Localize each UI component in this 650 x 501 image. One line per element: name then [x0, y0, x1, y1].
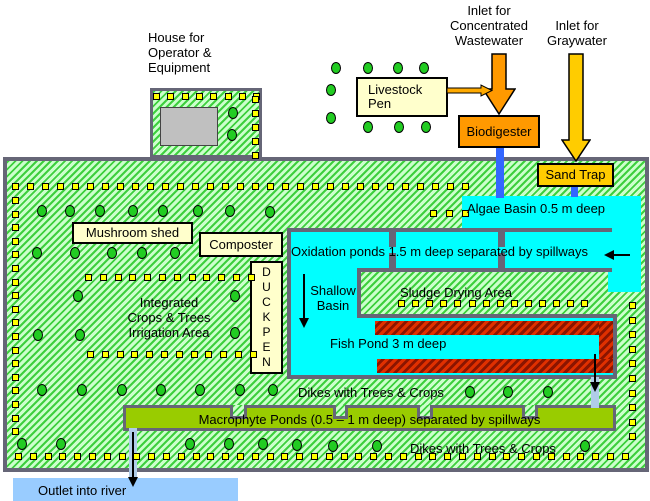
- oxidation-ponds-label: Oxidation ponds 1.5 m deep separated by …: [291, 244, 588, 259]
- tree-marker: [394, 121, 404, 133]
- integrated-area-label: IntegratedCrops & TreesIrrigation Area: [98, 295, 240, 340]
- inlet-graywater-label: Inlet forGraywater: [540, 18, 614, 48]
- dikes-upper-label: Dikes with Trees & Crops: [298, 385, 444, 400]
- inlet-concentrated-label: Inlet forConcentratedWastewater: [440, 3, 538, 48]
- duck-pen-box: D U C K P E N: [250, 261, 283, 374]
- duck-pen-letter: C: [262, 295, 271, 310]
- graywater-inflow-arrow-icon: [561, 53, 591, 163]
- oxidation-inflow-arrowhead-icon: [604, 250, 614, 260]
- dikes-lower-label: Dikes with Trees & Crops: [410, 441, 556, 456]
- algae-basin-label: Algae Basin 0.5 m deep: [467, 201, 605, 216]
- tree-marker: [326, 112, 336, 124]
- biodigester-pipe: [496, 147, 504, 198]
- outlet-flow-arrowhead-icon: [128, 477, 138, 487]
- fishpond-flow-arrowhead-icon: [590, 382, 600, 392]
- duck-pen-letter: K: [262, 310, 271, 325]
- fish-pond-liner-bottom: [377, 359, 613, 373]
- outlet-flow-arrow-icon: [132, 432, 134, 478]
- tree-marker: [326, 84, 336, 96]
- livestock-pen-label: Livestock: [368, 83, 422, 97]
- tree-marker: [363, 62, 373, 74]
- house-label: House forOperator &Equipment: [148, 30, 212, 75]
- shallow-basin-wall: [287, 268, 291, 316]
- fish-pond-liner-top: [375, 321, 613, 335]
- mushroom-shed-label: Mushroom shed: [86, 226, 179, 240]
- composter-label: Composter: [209, 238, 273, 252]
- biodigester-label: Biodigester: [466, 125, 531, 139]
- duck-pen-letter: D: [262, 265, 271, 280]
- livestock-to-digester-arrow-icon: [446, 84, 494, 97]
- duck-pen-letter: E: [262, 340, 271, 355]
- fish-pond-label: Fish Pond 3 m deep: [330, 336, 446, 351]
- fishpond-flow-arrow-icon: [594, 354, 596, 384]
- house-building: [160, 107, 218, 146]
- duck-pen-letter: U: [262, 280, 271, 295]
- duck-pen-letter: P: [262, 325, 271, 340]
- site-diagram: Livestock Pen Biodigester Sand Trap Mush…: [0, 0, 650, 501]
- tree-marker: [393, 62, 403, 74]
- shallow-basin-flow-arrowhead-icon: [299, 318, 309, 328]
- tree-marker: [421, 121, 431, 133]
- macrophyte-ponds-label: Macrophyte Ponds (0.5 – 1 m deep) separa…: [123, 412, 616, 427]
- composter-box: Composter: [199, 232, 283, 257]
- livestock-pen-label: Pen: [368, 97, 422, 111]
- sand-trap-label: Sand Trap: [546, 168, 606, 182]
- livestock-pen-box: Livestock Pen: [356, 77, 448, 117]
- tree-marker: [363, 121, 373, 133]
- tree-marker: [331, 62, 341, 74]
- mushroom-shed-box: Mushroom shed: [72, 222, 193, 244]
- tree-marker: [419, 62, 429, 74]
- biodigester-box: Biodigester: [458, 115, 540, 148]
- outlet-label: Outlet into river: [38, 483, 126, 498]
- sludge-drying-label: Sludge Drying Area: [400, 285, 512, 300]
- duck-pen-letter: N: [262, 355, 271, 370]
- shallow-basin-label: ShallowBasin: [305, 283, 361, 313]
- sand-trap-box: Sand Trap: [537, 163, 614, 187]
